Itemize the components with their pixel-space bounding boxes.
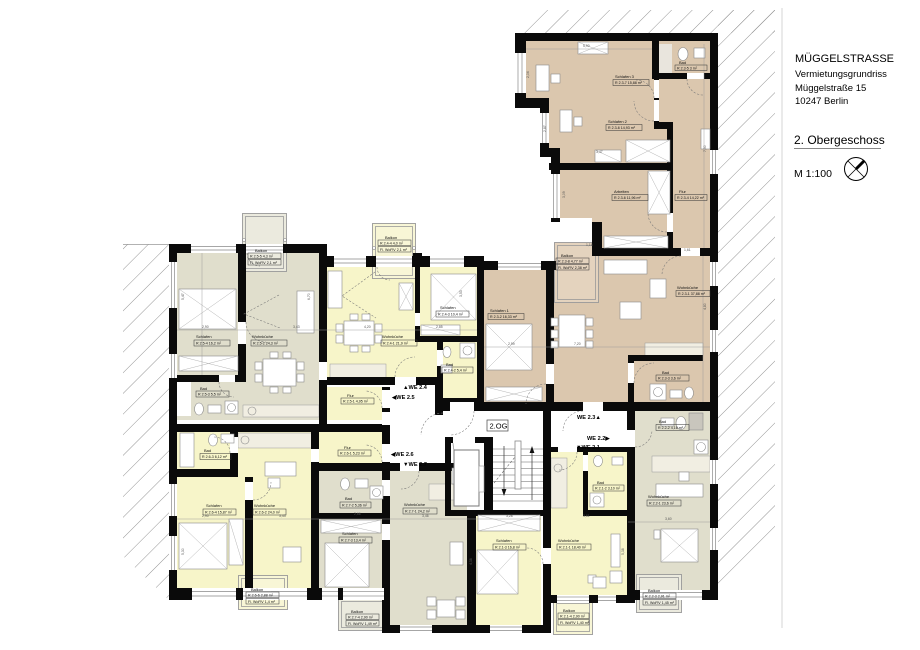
svg-text:R 2.7-4 2,90 m²: R 2.7-4 2,90 m² [348, 616, 374, 620]
svg-text:Fl. WoFlV 1,40 m²: Fl. WoFlV 1,40 m² [560, 621, 590, 625]
svg-text:Wohnküche: Wohnküche [677, 285, 699, 290]
svg-text:Wohnküche: Wohnküche [648, 494, 670, 499]
svg-text:Fl. WoFlV 1,4 m²: Fl. WoFlV 1,4 m² [248, 600, 276, 604]
svg-text:Müggelstraße 15: Müggelstraße 15 [795, 83, 866, 94]
svg-text:R 2.3-1 37,88 m²: R 2.3-1 37,88 m² [678, 292, 706, 296]
svg-text:7,50: 7,50 [703, 145, 707, 152]
svg-text:R 2.4-1 21,9 m²: R 2.4-1 21,9 m² [383, 342, 409, 346]
svg-text:Arbeiten: Arbeiten [614, 189, 629, 194]
svg-text:MÜGGELSTRASSE: MÜGGELSTRASSE [795, 53, 894, 65]
svg-text:M 1:100: M 1:100 [794, 168, 832, 180]
svg-text:R 2.4-2 5,4 m²: R 2.4-2 5,4 m² [444, 369, 468, 373]
svg-text:Balkon: Balkon [561, 253, 573, 258]
svg-text:2,99: 2,99 [508, 342, 515, 346]
svg-text:5,90: 5,90 [583, 44, 590, 48]
svg-text:2,85: 2,85 [436, 325, 443, 329]
svg-text:Balkon: Balkon [255, 248, 267, 253]
svg-text:Fl. WoFlV 2,1 m²: Fl. WoFlV 2,1 m² [250, 261, 278, 265]
svg-text:3,60: 3,60 [665, 517, 672, 521]
svg-text:4,80: 4,80 [703, 303, 707, 310]
svg-text:R 2.6-3 6,12 m²: R 2.6-3 6,12 m² [202, 455, 228, 459]
svg-text:R 2.6-4 15,87 m²: R 2.6-4 15,87 m² [205, 511, 233, 515]
svg-text:R 2.6-6 2,88 m²: R 2.6-6 2,88 m² [248, 594, 274, 598]
svg-text:5,38: 5,38 [621, 548, 625, 555]
svg-text:Flur: Flur [344, 445, 352, 450]
svg-text:R 2.7-3 13,4 m²: R 2.7-3 13,4 m² [341, 539, 367, 543]
svg-text:1,16: 1,16 [586, 243, 593, 247]
svg-text:Bad: Bad [662, 370, 669, 375]
svg-text:R 2.3-5 3 m²: R 2.3-5 3 m² [677, 67, 698, 71]
svg-text:10247 Berlin: 10247 Berlin [795, 96, 848, 107]
svg-text:Wohnküche: Wohnküche [558, 538, 580, 543]
svg-text:Wohnküche: Wohnküche [252, 334, 274, 339]
svg-text:Schlafen: Schlafen [440, 305, 456, 310]
svg-text:Vermietungsgrundriss: Vermietungsgrundriss [795, 69, 887, 80]
svg-text:Bad: Bad [200, 386, 207, 391]
svg-text:7,20: 7,20 [574, 342, 581, 346]
svg-text:2. Obergeschoss: 2. Obergeschoss [794, 133, 885, 147]
svg-text:Bad: Bad [597, 480, 604, 485]
svg-text:▼WE 2.1: ▼WE 2.1 [576, 445, 600, 451]
svg-text:Fl. WoFlV 2,1 m²: Fl. WoFlV 2,1 m² [380, 248, 408, 252]
svg-text:WE 2.3▲: WE 2.3▲ [577, 415, 601, 421]
svg-text:Bad: Bad [345, 496, 352, 501]
svg-text:3,61: 3,61 [583, 514, 590, 518]
svg-text:Schlafen: Schlafen [342, 531, 358, 536]
svg-text:2,66: 2,66 [354, 512, 361, 516]
svg-text:R 2.2-2 4,16 m²: R 2.2-2 4,16 m² [658, 426, 684, 430]
svg-text:Fl. WoFlV 1,49 m²: Fl. WoFlV 1,49 m² [348, 622, 378, 626]
svg-text:Wohnküche: Wohnküche [382, 334, 404, 339]
svg-text:Balkon: Balkon [385, 235, 397, 240]
svg-text:R 2.7-2 5,36 m²: R 2.7-2 5,36 m² [342, 504, 368, 508]
svg-text:3,47: 3,47 [596, 150, 603, 154]
svg-text:3,09: 3,09 [562, 191, 566, 198]
svg-text:R 2.1-4 2,90 m²: R 2.1-4 2,90 m² [560, 615, 586, 619]
svg-text:R 2.3-7 15,88 m²: R 2.3-7 15,88 m² [615, 81, 643, 85]
svg-text:3,46: 3,46 [422, 514, 429, 518]
svg-text:R 2.5-2 24,3 m²: R 2.5-2 24,3 m² [253, 342, 279, 346]
svg-text:R 2.7-1 24,2 m²: R 2.7-1 24,2 m² [405, 510, 431, 514]
svg-text:R 2.3-8 4,77 m²: R 2.3-8 4,77 m² [558, 260, 584, 264]
svg-text:Wohnküche: Wohnküche [254, 503, 276, 508]
svg-text:R 2.1-2 3,10 m²: R 2.1-2 3,10 m² [595, 487, 621, 491]
svg-text:4,20: 4,20 [364, 325, 371, 329]
svg-text:R 2.5-1 4,95 m²: R 2.5-1 4,95 m² [343, 400, 369, 404]
svg-text:R 2.4-4 4,0 m²: R 2.4-4 4,0 m² [380, 242, 404, 246]
svg-text:WE 2.2▶: WE 2.2▶ [587, 435, 610, 442]
svg-text:Bad: Bad [659, 419, 666, 424]
svg-text:R 2.5-5 4,3 m²: R 2.5-5 4,3 m² [250, 255, 274, 259]
svg-text:Fl. WoFlV 2,38 m²: Fl. WoFlV 2,38 m² [558, 266, 588, 270]
svg-text:R 2.2-1 23,6 m²: R 2.2-1 23,6 m² [649, 502, 675, 506]
svg-text:5,30: 5,30 [181, 548, 185, 555]
svg-text:R 2.2-3 2,91 m²: R 2.2-3 2,91 m² [645, 595, 671, 599]
svg-text:R 2.6-1 5,23 m²: R 2.6-1 5,23 m² [340, 452, 366, 456]
svg-text:Wohnküche: Wohnküche [404, 502, 426, 507]
svg-text:2,90: 2,90 [202, 514, 209, 518]
svg-text:Schlafen: Schlafen [196, 334, 212, 339]
svg-text:3,53: 3,53 [459, 290, 463, 297]
svg-text:▲WE 2.4: ▲WE 2.4 [403, 385, 428, 391]
svg-text:Bad: Bad [204, 448, 211, 453]
svg-text:R 2.6-2 24,0 m²: R 2.6-2 24,0 m² [255, 511, 281, 515]
svg-text:Schlafen 3: Schlafen 3 [615, 74, 635, 79]
svg-text:◀WE 2.5: ◀WE 2.5 [391, 394, 415, 401]
svg-text:Bad: Bad [679, 60, 686, 65]
svg-text:2.OG: 2.OG [490, 422, 508, 431]
svg-text:R 2.3-4 14,22 m²: R 2.3-4 14,22 m² [677, 196, 705, 200]
svg-text:R 2.1-1 18,40 m²: R 2.1-1 18,40 m² [559, 546, 587, 550]
svg-text:Balkon: Balkon [351, 609, 363, 614]
svg-text:4,38: 4,38 [469, 558, 473, 565]
svg-text:3,28: 3,28 [506, 514, 513, 518]
svg-text:R 2.4-3 10,4 m²: R 2.4-3 10,4 m² [438, 313, 464, 317]
svg-text:R 2.3-6 11,96 m²: R 2.3-6 11,96 m² [614, 196, 642, 200]
svg-text:R 2.5-4 16,2 m²: R 2.5-4 16,2 m² [196, 342, 222, 346]
svg-text:5,47: 5,47 [181, 293, 185, 300]
svg-text:Flur: Flur [679, 189, 687, 194]
svg-text:R 2.3-6 14,93 m²: R 2.3-6 14,93 m² [608, 126, 636, 130]
svg-text:6,70: 6,70 [307, 293, 311, 300]
svg-text:2,87: 2,87 [543, 125, 547, 132]
svg-text:2,90: 2,90 [202, 325, 209, 329]
svg-text:Schlafen 2: Schlafen 2 [608, 119, 628, 124]
svg-text:R 2.1-3 16,8 m²: R 2.1-3 16,8 m² [495, 546, 521, 550]
svg-text:Balkon: Balkon [251, 587, 263, 592]
svg-text:Flur: Flur [347, 393, 355, 398]
svg-text:◀WE 2.6: ◀WE 2.6 [390, 451, 414, 458]
svg-text:Schlafen: Schlafen [206, 503, 222, 508]
svg-text:R 2.5-3 5,5 m²: R 2.5-3 5,5 m² [198, 393, 222, 397]
svg-text:Balkon: Balkon [648, 588, 660, 593]
svg-text:▼WE 2.7: ▼WE 2.7 [403, 462, 427, 468]
svg-text:Schlafen: Schlafen [496, 538, 512, 543]
svg-text:Bad: Bad [446, 362, 453, 367]
svg-text:1,61: 1,61 [684, 248, 691, 252]
svg-text:Balkon: Balkon [563, 608, 575, 613]
svg-text:Schlafen 1: Schlafen 1 [490, 308, 510, 313]
svg-text:3,43: 3,43 [293, 325, 300, 329]
svg-text:Fl. WoFlV 1,45 m²: Fl. WoFlV 1,45 m² [645, 601, 675, 605]
svg-text:R 2.3-3 3,6 m²: R 2.3-3 3,6 m² [658, 377, 682, 381]
svg-text:3,43: 3,43 [279, 514, 286, 518]
svg-text:R 2.3-2 16,33 m²: R 2.3-2 16,33 m² [490, 315, 518, 319]
svg-text:2,04: 2,04 [526, 71, 530, 78]
